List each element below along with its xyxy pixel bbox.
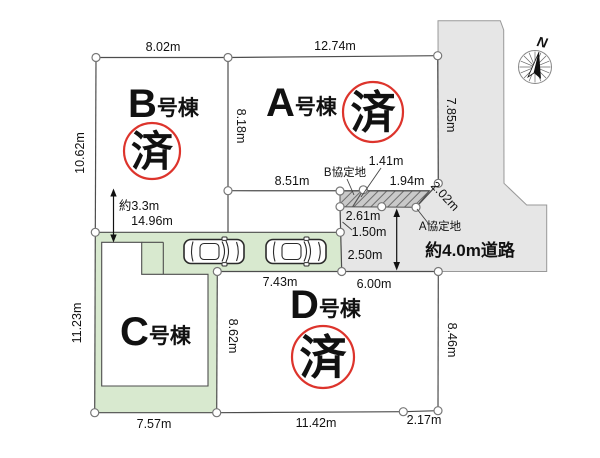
plot-a-label: A号棟 <box>266 81 338 125</box>
dim-parking-top: 14.96m <box>131 214 173 228</box>
compass: N <box>519 33 552 83</box>
plot-b-label: B号棟 <box>128 82 200 126</box>
label-b-agreement: B協定地 <box>324 165 367 179</box>
dim-agreement-sep: 1.41m <box>369 154 404 168</box>
dim-d-right: 8.46m <box>445 323 459 358</box>
site-plan-svg: 8.02m 12.74m 10.62m 8.18m 7.85m 8.51m 約3… <box>0 0 600 458</box>
dim-cd-boundary: 8.62m <box>226 319 240 354</box>
label-road: 約4.0m道路 <box>425 240 516 260</box>
dim-road-seg1: 1.50m <box>352 225 387 239</box>
svg-text:済: 済 <box>300 331 348 384</box>
dim-c-bottom: 7.57m <box>137 417 172 431</box>
dim-agreement-top: 1.94m <box>390 174 425 188</box>
sold-stamp-d: 済 <box>292 326 354 388</box>
car-2 <box>266 237 326 266</box>
dim-a-right: 7.85m <box>444 98 458 133</box>
svg-text:済: 済 <box>350 87 396 138</box>
sold-stamp-a: 済 <box>343 82 403 142</box>
dim-d-bottom-corner: 2.17m <box>407 413 442 427</box>
car-1 <box>184 237 244 266</box>
dim-a-bottom: 8.51m <box>275 174 310 188</box>
label-a-agreement: A協定地 <box>419 219 462 233</box>
dim-d-top: 6.00m <box>357 277 392 291</box>
dim-d-bottom: 11.42m <box>296 416 337 430</box>
dim-ab-boundary: 8.18m <box>234 109 248 144</box>
dim-c-left: 11.23m <box>70 303 84 344</box>
dim-agreement-bottom: 2.61m <box>346 209 381 223</box>
dim-a-top: 12.74m <box>314 39 356 53</box>
plot-d-label: D号棟 <box>290 283 362 327</box>
svg-text:済: 済 <box>131 128 174 175</box>
dim-road-seg2: 2.50m <box>348 248 383 262</box>
dim-b-left: 10.62m <box>73 132 87 174</box>
sold-stamp-b: 済 <box>124 123 180 179</box>
dim-b-setback: 約3.3m <box>119 198 159 213</box>
dim-b-top: 8.02m <box>146 40 181 54</box>
site-plan: 8.02m 12.74m 10.62m 8.18m 7.85m 8.51m 約3… <box>0 0 600 458</box>
compass-north-label: N <box>536 33 550 51</box>
